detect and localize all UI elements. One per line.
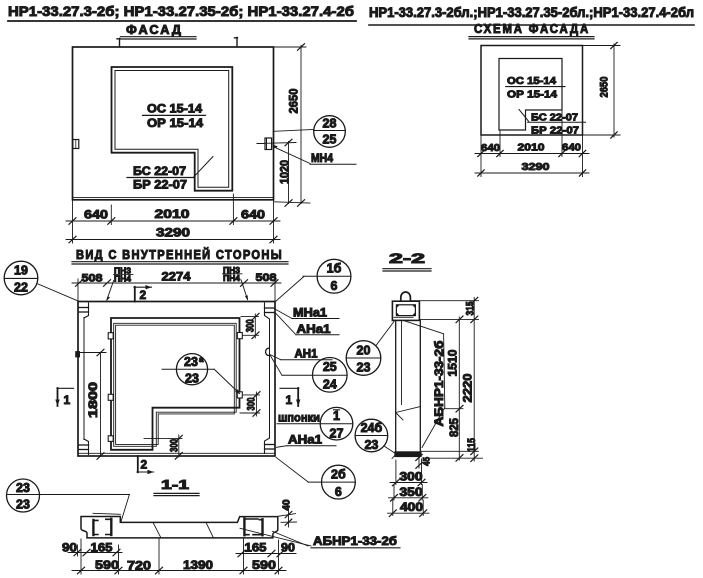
svg-text:БС 22-07: БС 22-07 [133, 164, 186, 178]
svg-text:1390: 1390 [183, 558, 213, 572]
svg-text:24б: 24б [361, 421, 383, 435]
svg-text:640: 640 [481, 142, 500, 154]
svg-text:6: 6 [335, 485, 342, 499]
svg-text:90: 90 [281, 541, 295, 555]
svg-text:640: 640 [241, 208, 265, 222]
svg-text:2б: 2б [331, 468, 346, 482]
svg-text:300: 300 [400, 472, 423, 484]
svg-text:720: 720 [127, 559, 151, 573]
svg-text:165: 165 [245, 541, 267, 555]
svg-text:1510: 1510 [448, 350, 460, 377]
svg-text:АНа1: АНа1 [297, 324, 332, 336]
svg-text:25: 25 [323, 133, 337, 147]
svg-text:590: 590 [252, 558, 276, 572]
svg-text:27: 27 [330, 427, 344, 441]
svg-text:19: 19 [14, 264, 28, 278]
svg-text:640: 640 [562, 142, 581, 154]
svg-text:ПН4: ПН4 [223, 273, 240, 283]
svg-text:ОС 15-14: ОС 15-14 [147, 102, 202, 116]
svg-text:590: 590 [95, 558, 119, 572]
svg-text:ПН4: ПН4 [114, 274, 131, 284]
svg-text:23: 23 [16, 481, 30, 495]
svg-text:ФАСАД: ФАСАД [126, 23, 183, 37]
svg-text:6: 6 [331, 279, 338, 293]
svg-text:БС 22-07: БС 22-07 [531, 112, 578, 124]
svg-text:МН4: МН4 [311, 153, 334, 165]
svg-text:300: 300 [246, 398, 258, 411]
svg-text:23: 23 [364, 438, 378, 452]
svg-text:350: 350 [400, 487, 423, 499]
svg-text:23: 23 [16, 498, 30, 512]
svg-text:ОР 15-14: ОР 15-14 [507, 89, 557, 101]
svg-text:22: 22 [14, 281, 28, 295]
svg-text:БР 22-07: БР 22-07 [133, 178, 187, 192]
svg-text:1800: 1800 [88, 382, 100, 418]
svg-text:2: 2 [141, 458, 148, 472]
svg-text:315: 315 [465, 302, 477, 316]
svg-text:1: 1 [333, 409, 340, 423]
svg-text:25: 25 [323, 360, 337, 374]
svg-text:45: 45 [422, 456, 433, 466]
svg-text:115: 115 [466, 438, 478, 452]
svg-text:НР1-33.27.3-2бл.;НР1-33.27.35-: НР1-33.27.3-2бл.;НР1-33.27.35-2бл.;НР1-3… [369, 5, 694, 20]
svg-text:825: 825 [449, 417, 461, 437]
svg-text:3290: 3290 [522, 161, 550, 173]
svg-text:1020: 1020 [280, 160, 292, 184]
svg-text:300: 300 [245, 319, 257, 332]
svg-text:СХЕМА ФАСАДА: СХЕМА ФАСАДА [474, 22, 590, 36]
svg-text:20: 20 [357, 344, 371, 358]
svg-text:АБНР1-33-2б: АБНР1-33-2б [313, 534, 397, 548]
svg-text:шпонки: шпонки [278, 413, 320, 425]
svg-text:28: 28 [323, 117, 337, 131]
svg-text:300: 300 [168, 439, 180, 452]
svg-text:1б: 1б [327, 262, 342, 276]
svg-text:МНа1: МНа1 [293, 308, 328, 320]
svg-text:2: 2 [140, 288, 147, 302]
svg-text:АН1: АН1 [295, 349, 319, 361]
svg-text:НР1-33.27.3-2б; НР1-33.27.35-2: НР1-33.27.3-2б; НР1-33.27.35-2б; НР1-33.… [8, 3, 354, 19]
svg-text:1: 1 [64, 393, 71, 407]
svg-text:90: 90 [62, 541, 77, 555]
svg-text:ОР 15-14: ОР 15-14 [147, 116, 203, 130]
svg-text:2220: 2220 [463, 374, 475, 403]
svg-text:24: 24 [323, 378, 337, 392]
svg-text:АБНР1-33-2б: АБНР1-33-2б [434, 341, 446, 427]
svg-text:23: 23 [357, 361, 371, 375]
svg-text:БР 22-07: БР 22-07 [531, 125, 579, 137]
svg-text:3290: 3290 [156, 226, 190, 240]
svg-text:2010: 2010 [518, 142, 545, 154]
svg-text:2650: 2650 [599, 77, 611, 98]
svg-text:23: 23 [185, 372, 199, 386]
svg-text:640: 640 [84, 208, 108, 222]
svg-text:1-1: 1-1 [161, 477, 189, 492]
svg-text:ОС 15-14: ОС 15-14 [507, 75, 556, 87]
svg-text:2-2: 2-2 [389, 251, 425, 266]
svg-text:АНа1: АНа1 [288, 435, 323, 447]
svg-text:ВИД С ВНУТРЕННЕЙ СТОРОНЫ: ВИД С ВНУТРЕННЕЙ СТОРОНЫ [76, 247, 283, 262]
svg-text:400: 400 [400, 502, 423, 514]
svg-text:а: а [199, 355, 204, 364]
svg-text:40: 40 [282, 499, 293, 510]
svg-text:165: 165 [91, 541, 113, 555]
svg-text:2010: 2010 [155, 207, 190, 221]
svg-text:508: 508 [82, 273, 103, 285]
svg-text:2650: 2650 [287, 88, 301, 113]
svg-text:23: 23 [184, 355, 198, 369]
svg-text:508: 508 [256, 272, 277, 284]
svg-text:1: 1 [286, 393, 293, 407]
svg-text:2274: 2274 [162, 272, 192, 284]
